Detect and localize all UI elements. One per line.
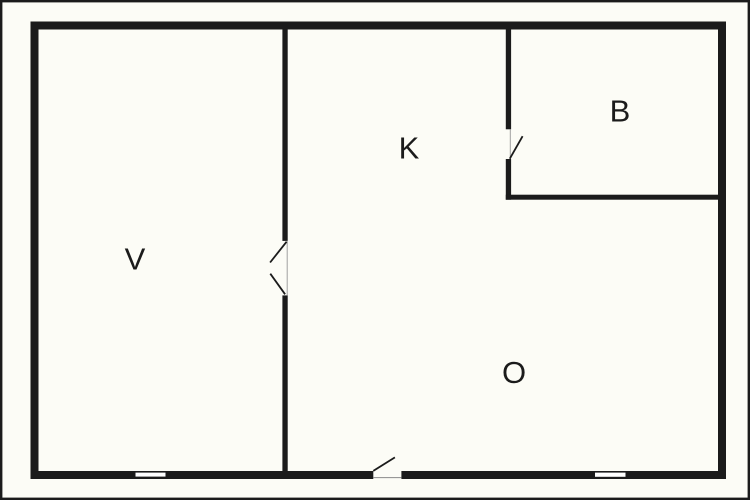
svg-text:K: K: [399, 131, 420, 166]
svg-text:O: O: [502, 355, 526, 390]
svg-text:B: B: [610, 94, 631, 129]
svg-text:V: V: [125, 242, 146, 277]
